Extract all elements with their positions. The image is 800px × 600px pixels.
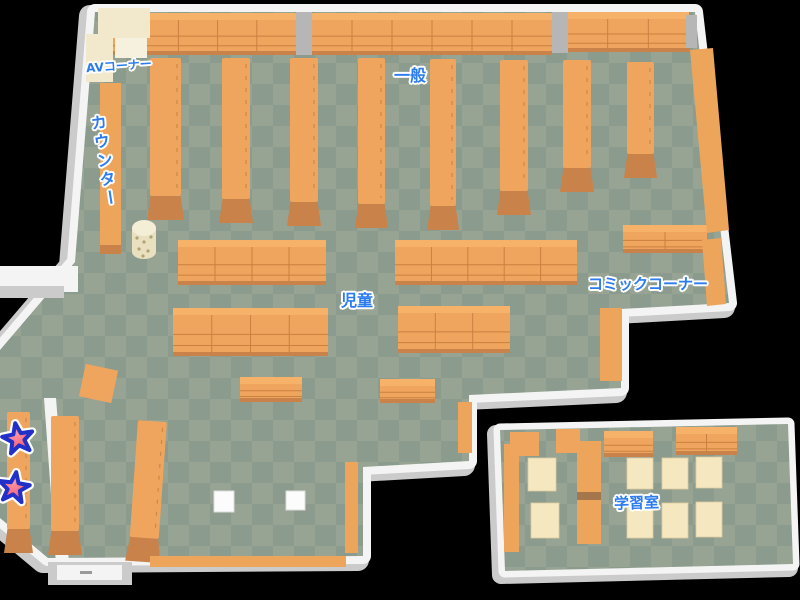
bookshelf-horizontal bbox=[567, 12, 689, 52]
bookshelf-vertical bbox=[287, 58, 321, 226]
bookshelf-horizontal bbox=[312, 13, 552, 55]
bookshelf-horizontal bbox=[604, 431, 653, 457]
spinner-dot bbox=[137, 247, 140, 250]
bookshelf-base bbox=[676, 451, 737, 455]
bookshelf-body bbox=[398, 306, 510, 353]
bookshelf-top bbox=[398, 306, 510, 313]
bookshelf-body bbox=[150, 58, 181, 196]
bookshelf-base bbox=[623, 249, 707, 253]
furniture-block bbox=[296, 12, 312, 55]
bookshelf-vertical bbox=[427, 59, 459, 230]
bookshelf-horizontal bbox=[380, 379, 435, 403]
furniture-block bbox=[504, 444, 519, 552]
furniture-block bbox=[577, 500, 601, 544]
bookshelf-vertical bbox=[48, 416, 82, 555]
bookshelf-top bbox=[623, 225, 707, 232]
bookshelf-base bbox=[240, 398, 302, 402]
bookshelf-horizontal bbox=[178, 240, 326, 285]
study-table bbox=[531, 503, 559, 538]
bookshelf-top bbox=[380, 379, 435, 386]
furniture-block bbox=[150, 556, 346, 567]
study-table bbox=[528, 458, 556, 491]
furniture-block bbox=[577, 441, 601, 492]
furniture-block bbox=[556, 429, 580, 453]
bookshelf-base bbox=[497, 187, 531, 215]
bookshelf-top bbox=[240, 377, 302, 384]
furniture-block bbox=[510, 432, 539, 456]
study-table bbox=[662, 503, 688, 538]
bookshelf-base bbox=[604, 453, 653, 457]
study-table bbox=[662, 458, 688, 489]
furniture-block bbox=[686, 15, 697, 48]
furniture-block bbox=[100, 245, 121, 254]
bookshelf-base bbox=[173, 352, 328, 356]
bookshelf-base bbox=[427, 202, 459, 230]
study-table bbox=[627, 503, 653, 538]
furniture-block bbox=[100, 83, 121, 251]
bookshelf-vertical bbox=[624, 62, 657, 178]
furniture-block bbox=[600, 308, 622, 381]
bookshelf-vertical bbox=[147, 58, 184, 220]
furniture-block bbox=[458, 402, 472, 453]
entrance-door bbox=[48, 562, 132, 585]
bookshelf-base bbox=[624, 150, 657, 178]
book-spinner-rack bbox=[132, 220, 156, 259]
spinner-dot bbox=[146, 249, 149, 252]
bookshelf-top bbox=[173, 308, 328, 315]
bookshelf-horizontal bbox=[398, 306, 510, 353]
bookshelf-top bbox=[604, 431, 653, 438]
table bbox=[286, 491, 305, 510]
library-floor-map: AVコーナー カウンター 一般 児童 コミックコーナー 学習室 bbox=[0, 0, 800, 600]
bookshelf-base bbox=[560, 164, 594, 192]
bookshelf-base bbox=[395, 281, 577, 285]
wall-block-front bbox=[0, 286, 64, 298]
furniture-block bbox=[552, 12, 568, 53]
bookshelf-body bbox=[430, 59, 456, 206]
bookshelf-base bbox=[287, 198, 321, 226]
bookshelf-vertical bbox=[560, 60, 594, 192]
spinner-top bbox=[132, 220, 156, 236]
furniture-block bbox=[79, 364, 118, 403]
bookshelf-base bbox=[567, 48, 689, 52]
bookshelf-horizontal bbox=[240, 377, 302, 402]
bookshelf-top bbox=[312, 13, 552, 20]
table bbox=[214, 491, 234, 512]
bookshelf-base bbox=[312, 51, 552, 55]
bookshelf-vertical bbox=[497, 60, 531, 215]
bookshelf-base bbox=[219, 195, 253, 223]
study-table bbox=[696, 502, 722, 537]
study-table bbox=[627, 458, 653, 489]
bookshelf-top bbox=[676, 427, 737, 434]
bookshelf-base bbox=[4, 525, 33, 553]
furniture-block bbox=[86, 34, 113, 82]
bookshelf-base bbox=[380, 399, 435, 403]
bookshelf-horizontal bbox=[623, 225, 707, 253]
furniture-block bbox=[577, 492, 601, 500]
bookshelf-base bbox=[398, 349, 510, 353]
bookshelf-horizontal bbox=[173, 308, 328, 356]
bookshelf-base bbox=[355, 200, 388, 228]
bookshelf-horizontal bbox=[395, 240, 577, 285]
floor-map-canvas bbox=[0, 0, 800, 600]
spinner-dot bbox=[135, 236, 138, 239]
bookshelf-horizontal bbox=[676, 427, 737, 455]
door-handle bbox=[80, 571, 92, 574]
spinner-dot bbox=[149, 235, 152, 238]
bookshelf-top bbox=[567, 12, 689, 19]
furniture-block bbox=[98, 8, 150, 38]
bookshelf-base bbox=[48, 527, 82, 555]
furniture-block bbox=[345, 462, 358, 553]
spinner-dot bbox=[142, 240, 145, 243]
furniture-block bbox=[115, 38, 147, 58]
study-table bbox=[696, 457, 722, 488]
bookshelf-base bbox=[178, 281, 326, 285]
spinner-dot bbox=[141, 254, 144, 257]
bookshelf-top bbox=[178, 240, 326, 247]
bookshelf-vertical bbox=[219, 58, 253, 223]
bookshelf-base bbox=[147, 192, 184, 220]
bookshelf-top bbox=[395, 240, 577, 247]
bookshelf-vertical bbox=[355, 58, 388, 228]
